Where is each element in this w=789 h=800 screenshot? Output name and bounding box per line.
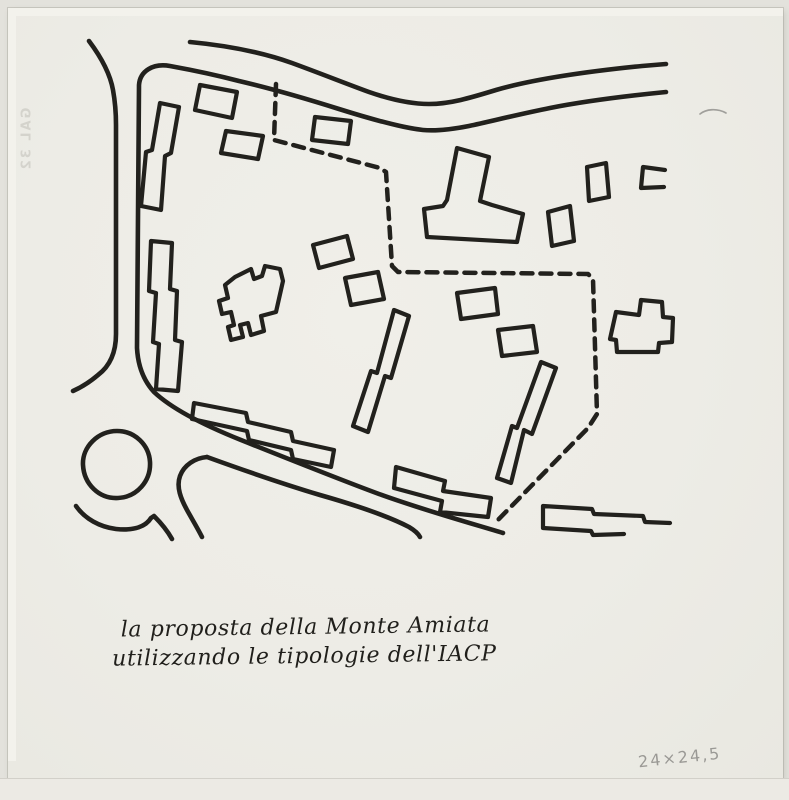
building-small-rect-5 <box>498 326 537 356</box>
pencil-tick-arc <box>700 110 726 114</box>
road-side-street-hook <box>179 457 207 537</box>
caption-line-2: utilizzando le tipologie dell'IACP <box>112 639 497 673</box>
caption: la proposta della Monte Amiata utilizzan… <box>112 610 497 673</box>
building-diagonal-slab-middle <box>353 310 409 432</box>
road-top-upper-line <box>190 42 666 104</box>
building-stepped-row-right-open <box>543 506 670 535</box>
building-long-slab-upper-left <box>141 103 179 210</box>
building-small-rect-1 <box>195 85 237 118</box>
building-angled-rect-ne-1 <box>313 236 353 268</box>
building-crenellated-central <box>219 266 283 340</box>
roundabout-circle <box>83 431 150 498</box>
building-diagonal-slab-bottom <box>497 362 556 483</box>
building-long-slab-lower-left <box>149 241 182 391</box>
dashed-site-boundary <box>274 84 597 523</box>
building-small-rect-2 <box>221 131 263 159</box>
scan-background: { "caption": { "line1": "la proposta del… <box>0 0 789 800</box>
roads-group <box>73 41 666 539</box>
road-main-continuous-line <box>137 65 666 533</box>
building-small-rect-6 <box>548 206 574 246</box>
building-tower-with-base-top <box>424 148 523 242</box>
site-plan-drawing <box>0 0 789 800</box>
showthrough-mark: GAL 32 <box>20 105 35 175</box>
building-small-rect-7 <box>587 163 609 201</box>
road-left-outer-line <box>73 41 116 391</box>
building-notched-right <box>610 300 673 352</box>
building-small-rect-4 <box>457 288 498 319</box>
building-small-rect-3 <box>312 117 351 144</box>
building-angled-rect-ne-2 <box>345 272 384 305</box>
building-open-c-shape <box>641 167 665 188</box>
building-stepped-row-middle <box>394 467 491 517</box>
road-curve-below-roundabout <box>76 506 172 539</box>
